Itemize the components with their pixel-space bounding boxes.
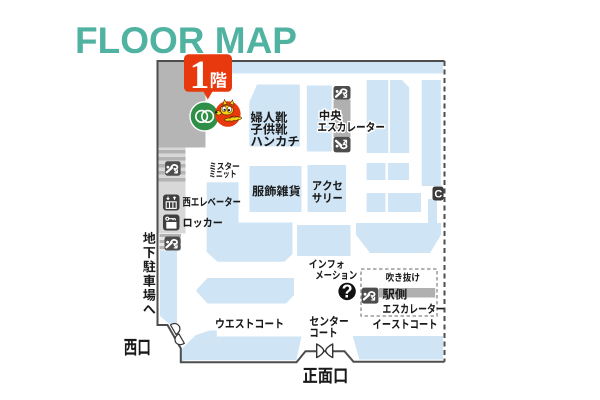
- svg-text:?: ?: [342, 282, 353, 302]
- svg-text:C: C: [434, 188, 442, 200]
